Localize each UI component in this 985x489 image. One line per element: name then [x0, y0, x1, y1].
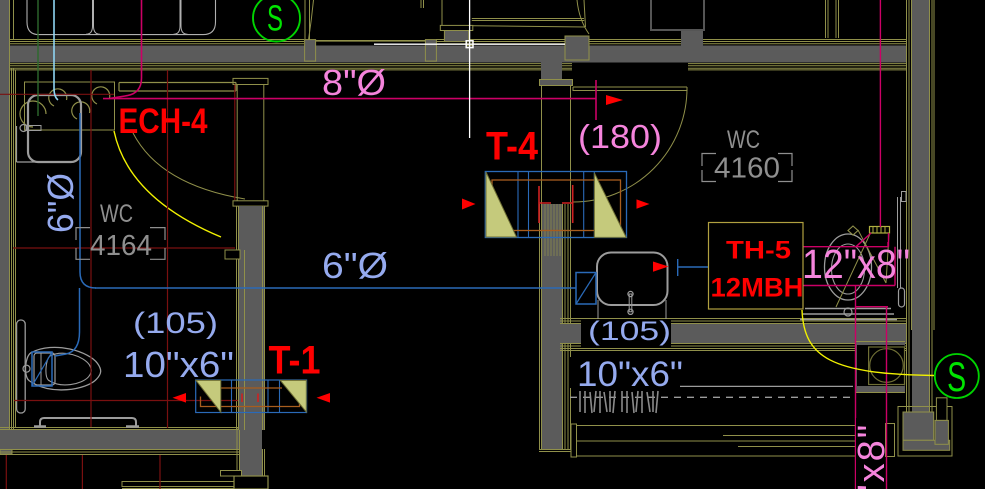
svg-text:T-1: T-1	[269, 339, 321, 383]
svg-text:12MBH: 12MBH	[711, 273, 804, 303]
svg-text:8"x8": 8"x8"	[851, 423, 893, 489]
svg-text:4160: 4160	[714, 153, 780, 185]
svg-text:WC: WC	[100, 200, 133, 228]
svg-text:S: S	[267, 0, 283, 39]
svg-text:8"Ø: 8"Ø	[322, 62, 386, 103]
svg-text:(105): (105)	[133, 307, 218, 340]
svg-text:12"x8": 12"x8"	[802, 241, 910, 287]
svg-text:6"Ø: 6"Ø	[40, 173, 81, 233]
svg-text:WC: WC	[727, 126, 760, 154]
svg-text:6"Ø: 6"Ø	[322, 245, 388, 286]
svg-text:10"x6": 10"x6"	[123, 344, 234, 385]
svg-text:10"x6": 10"x6"	[577, 355, 683, 394]
svg-text:ECH-4: ECH-4	[119, 102, 208, 141]
svg-text:(180): (180)	[578, 118, 662, 155]
svg-text:T-4: T-4	[486, 125, 539, 169]
svg-text:(105): (105)	[588, 316, 671, 346]
svg-text:S: S	[947, 353, 966, 400]
svg-text:TH-5: TH-5	[726, 237, 791, 265]
svg-text:4164: 4164	[90, 230, 152, 262]
